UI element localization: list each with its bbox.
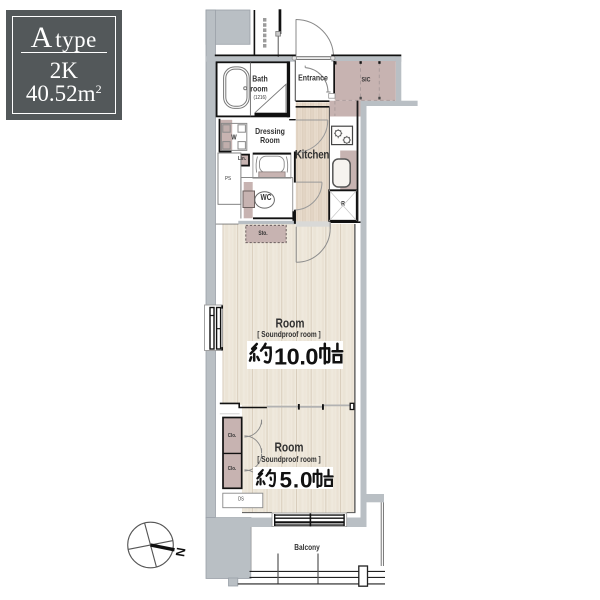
svg-text:10.0: 10.0 xyxy=(274,344,319,370)
svg-text:5.0: 5.0 xyxy=(280,468,313,493)
